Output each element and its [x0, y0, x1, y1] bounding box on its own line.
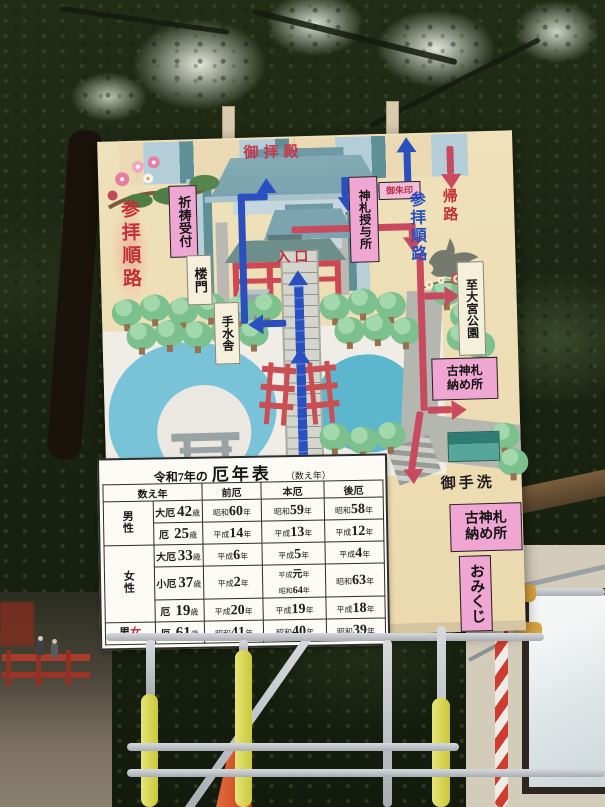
- scaffold-pole-vertical: [383, 640, 392, 807]
- route-blue-arrow-left: [248, 314, 264, 334]
- scaffold-foam-cover: [235, 650, 252, 807]
- yakudoshi-table: 令和7年の 厄年表 （数え年） 数え年前厄本厄後厄男性大厄42歳昭和60年昭和5…: [97, 453, 390, 650]
- scaffold-pole-vertical: [146, 640, 155, 698]
- prayer-reception-label: 祈祷受付: [168, 185, 198, 258]
- scaffold-pole-horizontal: [127, 743, 459, 751]
- route-blue-segment: [238, 193, 268, 201]
- red-fence-rail: [2, 672, 90, 678]
- distant-red-gate: [0, 602, 34, 646]
- old-amulet-depot-map-label: 古神札 納め所: [431, 357, 498, 401]
- pilgrimage-route-label-left: 参拝順路: [115, 199, 145, 292]
- red-fence-post: [36, 650, 41, 686]
- entrance-label: 入口: [276, 246, 313, 267]
- to-omiya-park-label: 至大宮公園: [457, 261, 487, 356]
- red-fence-post: [6, 650, 11, 686]
- amulet-office-label: 神札授与所: [348, 176, 379, 263]
- route-red-segment: [424, 292, 444, 300]
- route-blue-arrow-up: [396, 137, 416, 153]
- water-pavilion-label: 手水舎: [214, 302, 241, 365]
- route-blue-arrow-up: [256, 178, 276, 194]
- omikuji-label: おみくじ: [459, 555, 493, 632]
- route-blue-segment: [262, 320, 286, 328]
- table-title-note: （数え年）: [286, 468, 331, 482]
- old-amulet-depot-board-label: 古神札 納め所: [449, 502, 522, 552]
- tree-icon: [347, 426, 378, 454]
- tree-icon: [498, 448, 529, 476]
- tree-icon: [182, 321, 213, 349]
- torii-row-right: [305, 361, 337, 425]
- scaffold-pole-horizontal: [106, 633, 544, 641]
- scaffold-pole-horizontal: [127, 769, 605, 777]
- worship-hall-label: 御拝殿: [243, 140, 304, 163]
- route-red-arrow-down: [403, 469, 423, 485]
- tree-icon: [126, 322, 157, 350]
- pilgrimage-route-label-right: 参拝順路: [403, 191, 429, 264]
- roof-eave: [509, 467, 605, 516]
- sign-post: [222, 106, 235, 142]
- old-amulet-line1: 古神札: [465, 511, 507, 528]
- tree-icon: [319, 423, 350, 451]
- old-amulet-line2: 納め所: [447, 378, 483, 393]
- old-amulet-line2: 納め所: [465, 527, 507, 544]
- route-red-segment: [428, 406, 452, 414]
- scaffold-foam-cover: [432, 698, 450, 807]
- table-title-main: 厄年表: [212, 459, 272, 485]
- restroom-structure: [447, 431, 500, 462]
- tree-icon: [347, 288, 378, 316]
- torii-row-left: [262, 362, 293, 426]
- window: [522, 588, 605, 794]
- return-path-label: 帰路: [439, 188, 461, 225]
- table-title-prefix: 令和7年の: [154, 468, 208, 486]
- route-red-arrow-right: [451, 400, 467, 420]
- photo-stage: 御拝殿 祈祷受付 参拝順路 神札授与所 御朱印 参拝順路 帰路 至大宮公園 楼門…: [0, 0, 605, 807]
- restroom-label: 御手洗: [440, 471, 495, 494]
- shrine-map-sign: 御拝殿 祈祷受付 参拝順路 神札授与所 御朱印 参拝順路 帰路 至大宮公園 楼門…: [97, 130, 526, 641]
- red-fence-rail: [2, 654, 90, 661]
- route-red-segment: [446, 146, 454, 174]
- route-blue-arrow-up: [288, 270, 308, 286]
- tree-icon: [390, 317, 421, 345]
- shrine-path-scene: [0, 592, 112, 807]
- tree-icon: [375, 421, 406, 449]
- tree-icon: [362, 314, 393, 342]
- route-blue-arrow-up: [290, 348, 310, 364]
- pedestrian: [51, 644, 58, 657]
- pedestrian: [37, 641, 44, 655]
- tower-gate-label: 楼門: [186, 255, 212, 306]
- tree-icon: [154, 320, 185, 348]
- tree-icon: [334, 317, 365, 345]
- red-fence-post: [66, 650, 71, 686]
